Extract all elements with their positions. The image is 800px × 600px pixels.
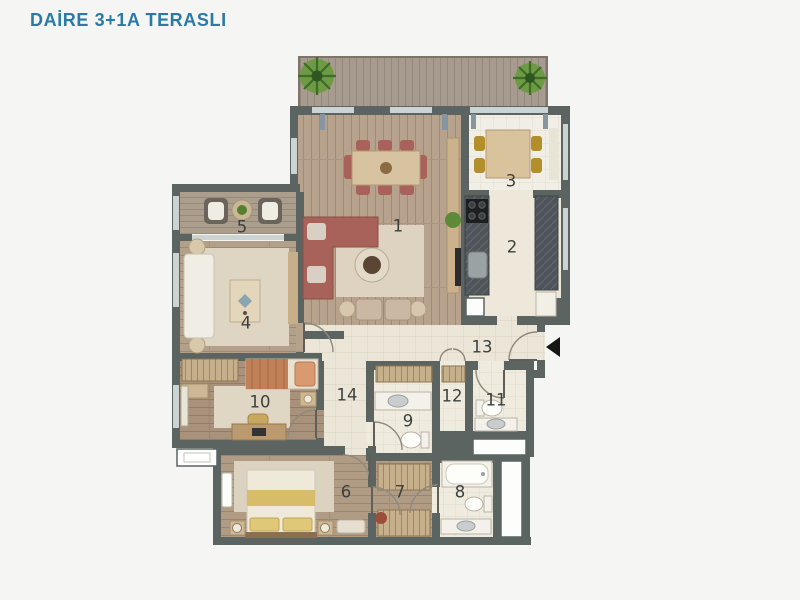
room4-sideboard xyxy=(288,252,298,324)
radiator xyxy=(181,386,188,426)
plant-icon xyxy=(445,212,461,228)
toilet-icon xyxy=(476,400,502,416)
room4-furniture xyxy=(184,239,298,353)
kitchen-cabinet xyxy=(536,292,556,316)
coffee-table xyxy=(355,248,389,282)
floorplan: 1234567891011121314 xyxy=(0,0,800,600)
toilet-icon xyxy=(465,496,492,512)
floorplan-svg xyxy=(0,0,800,600)
terrace-deck xyxy=(299,57,547,107)
bathtub xyxy=(442,461,492,487)
kitchen-sink xyxy=(468,252,487,278)
entrance-arrow-icon xyxy=(546,337,560,357)
balcony-furniture xyxy=(204,198,282,224)
wardrobe xyxy=(182,359,238,381)
window-bay xyxy=(177,449,217,466)
screenshot-root: DAİRE 3+1A TERASLI xyxy=(0,0,800,600)
stove xyxy=(466,199,488,223)
hall13-floor xyxy=(304,325,537,361)
radiator xyxy=(222,473,232,507)
tv xyxy=(455,248,461,286)
sofa xyxy=(184,254,214,338)
bench xyxy=(337,520,365,533)
pot xyxy=(375,512,387,524)
toilet-icon xyxy=(401,432,429,448)
single-bed xyxy=(246,359,318,389)
hall14-floor xyxy=(324,361,366,447)
plant-icon xyxy=(237,205,247,215)
double-bed xyxy=(245,470,317,538)
hall-shelves xyxy=(376,366,465,382)
